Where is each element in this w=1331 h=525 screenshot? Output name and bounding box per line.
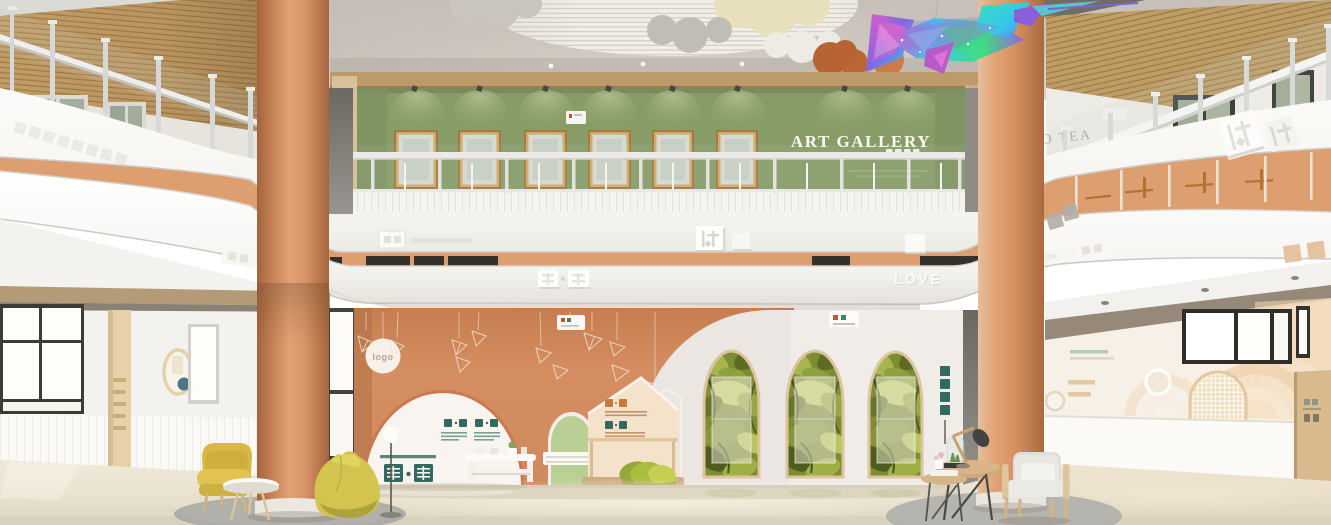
svg-text:LOVE: LOVE: [894, 271, 942, 287]
svg-text:logo: logo: [373, 352, 394, 362]
